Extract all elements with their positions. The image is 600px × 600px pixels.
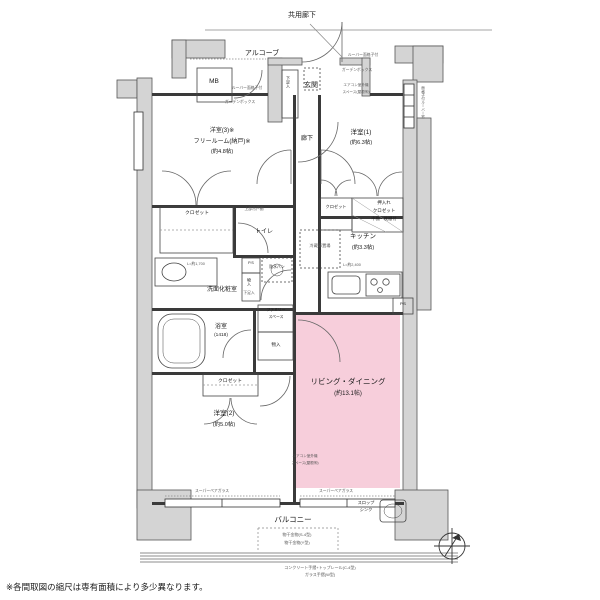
label-glass-2: スーパーペアガラス	[319, 490, 353, 494]
label-oshiire-1: 押入れ	[377, 201, 391, 206]
label-aircon-living-1: エアコン室外機	[292, 455, 317, 459]
label-room1-size: (約6.3帖)	[350, 141, 372, 147]
label-drying-2: 物干金物(Y型)	[284, 541, 309, 545]
label-room1-name: 洋室(1)	[351, 130, 372, 137]
label-slop-sink-1: スロップ	[358, 501, 375, 505]
label-disclaimer: ※各間取図の縮尺は専有面積により多少異なります。	[6, 583, 208, 592]
label-handrail-2: ガラス手摺(W型)	[305, 573, 335, 577]
label-living-size: (約13.1帖)	[334, 391, 362, 397]
label-living-name: リビング・ダイニング	[311, 378, 386, 386]
label-ps-kitchen: P.S	[400, 302, 406, 306]
label-louver-right: ルーバー面格子付	[348, 54, 378, 58]
label-aircon-corridor-2: スペース(屋根㈲)	[342, 91, 369, 95]
label-balcony: バルコニー	[274, 516, 311, 524]
label-drying-1: 物干金物(S-4型)	[283, 533, 312, 537]
label-family-space-1: ファミリー	[267, 309, 286, 313]
label-storage-wash: 物入	[247, 278, 251, 286]
label-alcove: アルコーブ	[245, 50, 279, 57]
label-corridor: 廊下	[301, 136, 313, 142]
label-garden-box-left: ガーデンボックス	[225, 101, 255, 105]
label-room3-size: (約4.8帖)	[211, 150, 233, 156]
label-louver-window: 面格子付ルーバー窓	[421, 86, 425, 118]
label-garden-box-right: ガーデンボックス	[342, 69, 372, 73]
label-wash-counter: L=約1,700	[187, 263, 205, 267]
label-kitchen-size: (約3.3帖)	[352, 246, 374, 252]
label-fridge: 冷蔵庫置場	[310, 244, 331, 248]
label-common-corridor: 共用廊下	[288, 12, 316, 19]
label-bath-name: 浴室	[215, 324, 227, 330]
label-storage-hall: 物入	[272, 343, 281, 348]
label-ps-wash: P.S	[248, 262, 254, 266]
label-meter-box: MB	[209, 79, 219, 86]
label-oshiire-3: 中棚・枕棚付	[371, 217, 396, 221]
label-handrail-1: コンクリート手摺+トップレール(C-4型)	[284, 566, 355, 570]
label-louver-left: ルーバー面格子付	[232, 87, 262, 91]
label-waterproof-pan: 防水パン	[269, 266, 284, 270]
label-kitchen-name: キッチン	[350, 234, 376, 241]
label-slop-sink-2: シンク	[360, 508, 373, 512]
floor-plan-drawing	[0, 0, 600, 600]
label-bath-size: (1418)	[214, 334, 228, 339]
kitchen-sink	[332, 276, 360, 294]
label-toilet: トイレ	[255, 229, 273, 235]
stove	[366, 274, 400, 296]
label-aircon-living-2: スペース(屋根㈲)	[291, 462, 318, 466]
label-aircon-corridor-1: エアコン室外機	[343, 84, 368, 88]
label-oshiire-2: クロゼット	[373, 209, 396, 214]
label-room2-size: (約5.0帖)	[213, 423, 235, 429]
bathtub	[158, 314, 205, 368]
label-room3-freeroom: フリールーム(納戸)※	[194, 139, 251, 145]
label-kitchen-counter: L=約2,400	[343, 264, 361, 268]
label-closet-room1: クロゼット	[326, 205, 347, 209]
label-closet-room3: クロゼット	[185, 212, 209, 217]
label-room3-name: 洋室(3)※	[210, 128, 234, 134]
label-shoe-box-entrance: 下足入	[286, 76, 290, 88]
label-glass-1: スーパーペアガラス	[195, 490, 229, 494]
wash-basin	[162, 263, 186, 281]
label-entrance: 玄関	[304, 82, 318, 89]
label-shoe-box-note: 下足入	[243, 292, 254, 296]
floor-plan: 共用廊下 アルコーブ MB 玄関 下足入 ルーバー面格子付 ガーデンボックス ル…	[0, 0, 600, 600]
label-room2-name: 洋室(2)	[214, 411, 235, 418]
label-family-space-2: スペース	[269, 316, 284, 320]
label-closet-room2: クロゼット	[218, 380, 242, 385]
label-washroom: 洗面化粧室	[207, 287, 237, 293]
label-toilet-shelf: 上部吊戸棚	[245, 208, 264, 212]
